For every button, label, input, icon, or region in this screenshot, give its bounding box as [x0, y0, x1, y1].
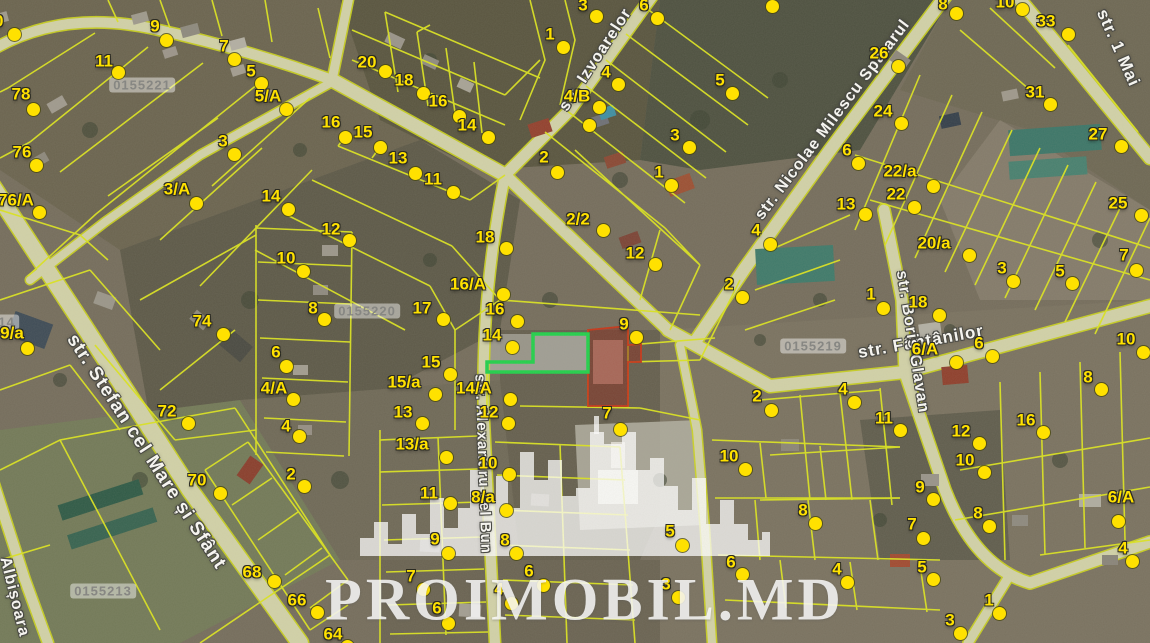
parcel-marker-number: 10	[720, 448, 739, 465]
parcel-marker-dot[interactable]	[764, 238, 777, 251]
parcel-marker-number: 7	[602, 405, 611, 422]
parcel-marker-dot[interactable]	[444, 368, 457, 381]
parcel-marker-dot[interactable]	[739, 463, 752, 476]
parcel-marker-dot[interactable]	[766, 0, 779, 13]
parcel-marker-dot[interactable]	[993, 607, 1006, 620]
parcel-marker-number: 14	[262, 188, 281, 205]
parcel-marker-dot[interactable]	[214, 487, 227, 500]
parcel-marker-number: 1	[984, 592, 993, 609]
parcel-marker-dot[interactable]	[557, 41, 570, 54]
parcel-marker-dot[interactable]	[551, 166, 564, 179]
parcel-marker-number: 2	[724, 276, 733, 293]
parcel-marker-number: 78	[12, 86, 31, 103]
parcel-marker-dot[interactable]	[280, 360, 293, 373]
parcel-marker-dot[interactable]	[182, 417, 195, 430]
parcel-marker-number: 11	[424, 171, 442, 188]
parcel-marker-number: 9/a	[0, 325, 24, 342]
parcel-marker-number: 6/A	[912, 341, 938, 358]
parcel-marker-dot[interactable]	[848, 396, 861, 409]
parcel-marker-dot[interactable]	[1007, 275, 1020, 288]
parcel-marker-number: 3/A	[164, 181, 190, 198]
parcel-marker-dot[interactable]	[927, 573, 940, 586]
parcel-marker-number: 7	[907, 516, 916, 533]
parcel-marker-dot[interactable]	[503, 468, 516, 481]
parcel-marker-dot[interactable]	[1016, 3, 1029, 16]
parcel-marker-dot[interactable]	[927, 493, 940, 506]
parcel-marker-dot[interactable]	[287, 393, 300, 406]
parcel-marker-number: 3	[670, 127, 679, 144]
parcel-marker-number: 26	[870, 45, 889, 62]
parcel-marker-dot[interactable]	[683, 141, 696, 154]
parcel-marker-dot[interactable]	[954, 627, 967, 640]
parcel-marker-number: 18	[476, 229, 495, 246]
parcel-marker-dot[interactable]	[112, 66, 125, 79]
parcel-marker-dot[interactable]	[614, 423, 627, 436]
parcel-marker-number: 4	[838, 381, 847, 398]
parcel-marker-number: 13/a	[395, 436, 428, 453]
parcel-marker-dot[interactable]	[506, 341, 519, 354]
parcel-marker-number: 5	[246, 63, 255, 80]
cadastral-sector-label: 0155213	[70, 584, 136, 599]
parcel-marker-number: 1	[866, 286, 875, 303]
parcel-marker-number: 15	[354, 124, 373, 141]
parcel-marker-number: 4	[281, 418, 290, 435]
parcel-marker-number: 8/a	[471, 489, 495, 506]
parcel-marker-number: 8	[938, 0, 947, 13]
parcel-marker-number: 5	[665, 523, 674, 540]
parcel-marker-number: 70	[188, 472, 207, 489]
parcel-marker-number: 10	[479, 455, 498, 472]
parcel-marker-dot[interactable]	[217, 328, 230, 341]
parcel-marker-number: 14	[458, 117, 477, 134]
parcel-marker-number: 4	[1118, 540, 1127, 557]
parcel-marker-number: 6	[639, 0, 648, 14]
parcel-marker-number: 74	[193, 313, 212, 330]
parcel-marker-number: 13	[837, 196, 856, 213]
parcel-marker-dot[interactable]	[1044, 98, 1057, 111]
parcel-marker-dot[interactable]	[437, 313, 450, 326]
parcel-marker-dot[interactable]	[651, 12, 664, 25]
parcel-marker-number: 18	[909, 294, 928, 311]
parcel-marker-number: 4/A	[261, 380, 287, 397]
parcel-marker-number: 15/a	[387, 374, 420, 391]
parcel-marker-number: 16	[1017, 412, 1036, 429]
parcel-marker-number: 2	[752, 388, 761, 405]
parcel-marker-number: 8	[798, 502, 807, 519]
parcel-marker-dot[interactable]	[160, 34, 173, 47]
parcel-marker-dot[interactable]	[500, 242, 513, 255]
parcel-marker-number: 9	[430, 531, 439, 548]
parcel-marker-dot[interactable]	[933, 309, 946, 322]
parcel-marker-dot[interactable]	[927, 180, 940, 193]
parcel-marker-dot[interactable]	[894, 424, 907, 437]
parcel-marker-dot[interactable]	[612, 78, 625, 91]
parcel-marker-dot[interactable]	[583, 119, 596, 132]
parcel-marker-dot[interactable]	[597, 224, 610, 237]
parcel-marker-number: 9	[915, 479, 924, 496]
parcel-marker-number: 3	[997, 260, 1006, 277]
parcel-marker-number: 8	[500, 532, 509, 549]
parcel-marker-dot[interactable]	[1115, 140, 1128, 153]
parcel-marker-dot[interactable]	[500, 504, 513, 517]
parcel-marker-number: 76	[13, 144, 32, 161]
parcel-marker-dot[interactable]	[442, 547, 455, 560]
parcel-marker-number: 4	[751, 222, 760, 239]
parcel-marker-dot[interactable]	[895, 117, 908, 130]
parcel-marker-number: 13	[394, 404, 413, 421]
parcel-marker-number: 4	[601, 64, 610, 81]
parcel-marker-dot[interactable]	[1037, 426, 1050, 439]
parcel-marker-number: 68	[243, 564, 262, 581]
parcel-marker-dot[interactable]	[268, 575, 281, 588]
parcel-marker-number: 16	[486, 301, 505, 318]
parcel-marker-dot[interactable]	[409, 167, 422, 180]
parcel-marker-dot[interactable]	[228, 148, 241, 161]
parcel-marker-number: 18	[395, 72, 414, 89]
parcel-marker-dot[interactable]	[908, 201, 921, 214]
parcel-marker-number: 72	[158, 403, 177, 420]
parcel-marker-dot[interactable]	[676, 539, 689, 552]
parcel-marker-dot[interactable]	[859, 208, 872, 221]
parcel-marker-dot[interactable]	[190, 197, 203, 210]
parcel-marker-dot[interactable]	[963, 249, 976, 262]
parcel-marker-number: 3	[945, 612, 954, 629]
parcel-marker-dot[interactable]	[297, 265, 310, 278]
parcel-marker-dot[interactable]	[374, 141, 387, 154]
parcel-marker-dot[interactable]	[877, 302, 890, 315]
parcel-marker-dot[interactable]	[510, 547, 523, 560]
parcel-marker-dot[interactable]	[318, 313, 331, 326]
parcel-marker-number: 8	[1083, 369, 1092, 386]
parcel-marker-number: 8	[973, 505, 982, 522]
parcel-marker-number: 6	[842, 142, 851, 159]
parcel-marker-dot[interactable]	[809, 517, 822, 530]
parcel-marker-dot[interactable]	[665, 179, 678, 192]
parcel-marker-number: 7	[1119, 247, 1128, 264]
map-canvas: str. Izvoarelorstr. Nicolae Milescu Spăt…	[0, 0, 1150, 643]
parcel-marker-number: 9	[619, 316, 628, 333]
parcel-marker-dot[interactable]	[511, 315, 524, 328]
cadastral-sector-label: 0155220	[334, 304, 400, 319]
parcel-marker-dot[interactable]	[593, 101, 606, 114]
parcel-marker-number: 14/A	[456, 380, 492, 397]
parcel-marker-number: 5/A	[255, 88, 281, 105]
parcel-marker-number: 76/A	[0, 192, 34, 209]
parcel-marker-dot[interactable]	[228, 53, 241, 66]
parcel-marker-number: 1	[545, 26, 554, 43]
parcel-marker-number: 33	[1037, 13, 1056, 30]
parcel-marker-number: 3	[578, 0, 587, 14]
parcel-marker-dot[interactable]	[983, 520, 996, 533]
parcel-marker-number: 22/a	[883, 163, 916, 180]
cadastral-sector-label: 0155221	[109, 78, 175, 93]
parcel-marker-number: 16/A	[450, 276, 486, 293]
parcel-marker-number: 3	[218, 133, 227, 150]
parcel-marker-number: 13	[389, 150, 408, 167]
parcel-marker-dot[interactable]	[1066, 277, 1079, 290]
parcel-marker-dot[interactable]	[973, 437, 986, 450]
parcel-marker-dot[interactable]	[978, 466, 991, 479]
parcel-marker-number: 16	[429, 93, 448, 110]
parcel-marker-number: 22	[887, 186, 906, 203]
parcel-marker-number: 27	[1089, 126, 1108, 143]
parcel-marker-dot[interactable]	[444, 497, 457, 510]
parcel-marker-dot[interactable]	[590, 10, 603, 23]
parcel-marker-dot[interactable]	[649, 258, 662, 271]
parcel-marker-number: 1	[654, 164, 663, 181]
parcel-marker-dot[interactable]	[429, 388, 442, 401]
parcel-marker-number: 31	[1026, 84, 1045, 101]
parcel-marker-dot[interactable]	[986, 350, 999, 363]
parcel-marker-dot[interactable]	[892, 60, 905, 73]
parcel-marker-number: 2/2	[566, 211, 590, 228]
parcel-marker-number: 7	[219, 38, 228, 55]
parcel-marker-number: 6	[974, 335, 983, 352]
parcel-marker-dot[interactable]	[1112, 515, 1125, 528]
parcel-marker-dot[interactable]	[504, 393, 517, 406]
parcel-marker-dot[interactable]	[917, 532, 930, 545]
parcel-marker-dot[interactable]	[1062, 28, 1075, 41]
parcel-marker-dot[interactable]	[293, 430, 306, 443]
parcel-marker-dot[interactable]	[1130, 264, 1143, 277]
parcel-marker-number: 10	[1117, 331, 1136, 348]
parcel-marker-dot[interactable]	[339, 131, 352, 144]
parcel-marker-number: 14	[483, 327, 502, 344]
parcel-marker-dot[interactable]	[765, 404, 778, 417]
parcel-marker-number: 15	[422, 354, 441, 371]
parcel-marker-dot[interactable]	[282, 203, 295, 216]
parcel-marker-number: 10	[996, 0, 1015, 11]
parcel-marker-dot[interactable]	[416, 417, 429, 430]
parcel-marker-dot[interactable]	[280, 103, 293, 116]
watermark-text: PROIMOBIL.MD	[325, 566, 845, 635]
parcel-marker-number: 16	[322, 114, 341, 131]
parcel-marker-dot[interactable]	[736, 291, 749, 304]
parcel-marker-number: 5	[917, 559, 926, 576]
parcel-marker-number: 11	[875, 410, 893, 427]
parcel-marker-dot[interactable]	[21, 342, 34, 355]
parcel-marker-dot[interactable]	[311, 606, 324, 619]
parcel-marker-dot[interactable]	[8, 28, 21, 41]
parcel-marker-number: 2	[286, 466, 295, 483]
parcel-marker-number: 20/a	[917, 235, 950, 252]
parcel-marker-number: 5	[715, 72, 724, 89]
parcel-marker-dot[interactable]	[27, 103, 40, 116]
parcel-marker-number: 20	[358, 54, 377, 71]
parcel-marker-dot[interactable]	[440, 451, 453, 464]
parcel-marker-dot[interactable]	[1137, 346, 1150, 359]
parcel-marker-dot[interactable]	[502, 417, 515, 430]
parcel-marker-number: 4/B	[564, 88, 590, 105]
parcel-marker-number: 12	[952, 423, 971, 440]
parcel-marker-number: 10	[956, 452, 975, 469]
parcel-marker-dot[interactable]	[379, 65, 392, 78]
parcel-marker-dot[interactable]	[33, 206, 46, 219]
parcel-marker-dot[interactable]	[447, 186, 460, 199]
parcel-marker-dot[interactable]	[298, 480, 311, 493]
parcel-marker-number: 11	[95, 53, 113, 70]
parcel-marker-dot[interactable]	[950, 7, 963, 20]
parcel-marker-dot[interactable]	[852, 157, 865, 170]
parcel-marker-dot[interactable]	[726, 87, 739, 100]
parcel-marker-dot[interactable]	[1095, 383, 1108, 396]
parcel-marker-dot[interactable]	[630, 331, 643, 344]
parcel-marker-number: 9	[150, 18, 159, 35]
parcel-marker-number: 12	[626, 245, 645, 262]
parcel-marker-dot[interactable]	[1135, 209, 1148, 222]
cadastral-sector-label: 0155219	[780, 339, 846, 354]
parcel-marker-number: 12	[322, 221, 341, 238]
parcel-marker-number: 11	[420, 485, 438, 502]
parcel-marker-number: 10	[277, 250, 296, 267]
parcel-marker-number: 6	[271, 344, 280, 361]
parcel-marker-number: 17	[413, 300, 432, 317]
parcel-marker-dot[interactable]	[950, 356, 963, 369]
parcel-marker-number: 12	[480, 404, 499, 421]
parcel-marker-number: 25	[1109, 195, 1128, 212]
parcel-marker-number: 2	[539, 149, 548, 166]
parcel-marker-number: 66	[288, 592, 307, 609]
parcel-marker-number: 6/A	[1108, 489, 1134, 506]
parcel-marker-number: 5	[1055, 263, 1064, 280]
parcel-marker-number: 8	[308, 300, 317, 317]
parcel-marker-dot[interactable]	[482, 131, 495, 144]
parcel-marker-number: 24	[874, 103, 893, 120]
parcel-marker-dot[interactable]	[343, 234, 356, 247]
parcel-marker-number: 10	[0, 13, 3, 30]
